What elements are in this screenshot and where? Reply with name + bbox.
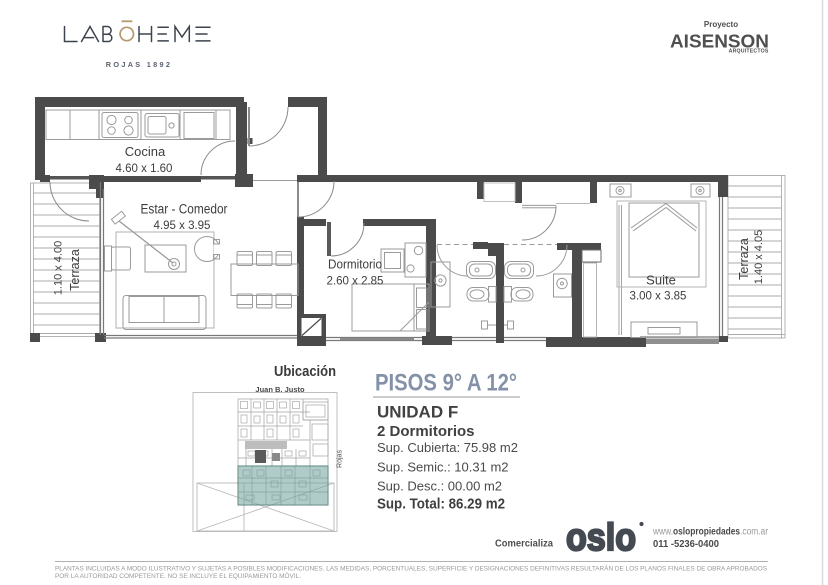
svg-text:1.10 x 4.00: 1.10 x 4.00 bbox=[53, 241, 65, 295]
svg-text:4.95 x 3.95: 4.95 x 3.95 bbox=[154, 220, 211, 232]
svg-text:3.00 x 3.85: 3.00 x 3.85 bbox=[630, 291, 687, 303]
svg-text:2.60 x 2.85: 2.60 x 2.85 bbox=[327, 276, 384, 288]
svg-text:oslo: oslo bbox=[566, 517, 636, 559]
svg-text:POR LA AUTORIDAD COMPETENTE. N: POR LA AUTORIDAD COMPETENTE. NO SE INCLU… bbox=[55, 571, 301, 580]
svg-text:Sup. Total: 86.29 m2: Sup. Total: 86.29 m2 bbox=[377, 497, 505, 513]
svg-text:Suite: Suite bbox=[646, 273, 676, 288]
svg-text:ROJAS 1892: ROJAS 1892 bbox=[106, 60, 172, 69]
svg-text:Sup. Cubierta: 75.98 m2: Sup. Cubierta: 75.98 m2 bbox=[377, 440, 518, 455]
svg-text:Dormitorio: Dormitorio bbox=[328, 257, 382, 272]
svg-text:ARQUITECTOS: ARQUITECTOS bbox=[729, 48, 769, 54]
svg-text:Terraza: Terraza bbox=[68, 249, 82, 291]
svg-text:Sup. Desc.: 00.00 m2: Sup. Desc.: 00.00 m2 bbox=[377, 479, 502, 494]
svg-text:2 Dormitorios: 2 Dormitorios bbox=[377, 423, 475, 440]
svg-text:Cocina: Cocina bbox=[125, 144, 166, 159]
svg-text:Rojas: Rojas bbox=[337, 450, 344, 468]
svg-text:1.40 x 4.05: 1.40 x 4.05 bbox=[753, 230, 765, 284]
svg-text:UNIDAD F: UNIDAD F bbox=[377, 403, 458, 422]
svg-text:PISOS 9° A 12°: PISOS 9° A 12° bbox=[375, 370, 517, 397]
svg-text:Proyecto: Proyecto bbox=[704, 20, 738, 29]
svg-text:Comercializa: Comercializa bbox=[495, 539, 553, 550]
svg-text:Ubicación: Ubicación bbox=[274, 363, 336, 380]
svg-text:011 -5236-0400: 011 -5236-0400 bbox=[653, 539, 720, 550]
svg-text:PLANTAS INCLUIDAS A MODO ILUST: PLANTAS INCLUIDAS A MODO ILUSTRATIVO Y S… bbox=[55, 564, 767, 573]
svg-text:Terraza: Terraza bbox=[737, 238, 751, 280]
svg-text:Estar - Comedor: Estar - Comedor bbox=[141, 202, 228, 217]
svg-text:Sup. Semic.: 10.31 m2: Sup. Semic.: 10.31 m2 bbox=[377, 460, 509, 475]
svg-text:www.oslopropiedades.com.ar: www.oslopropiedades.com.ar bbox=[652, 527, 768, 538]
svg-text:4.60 x 1.60: 4.60 x 1.60 bbox=[116, 163, 173, 175]
